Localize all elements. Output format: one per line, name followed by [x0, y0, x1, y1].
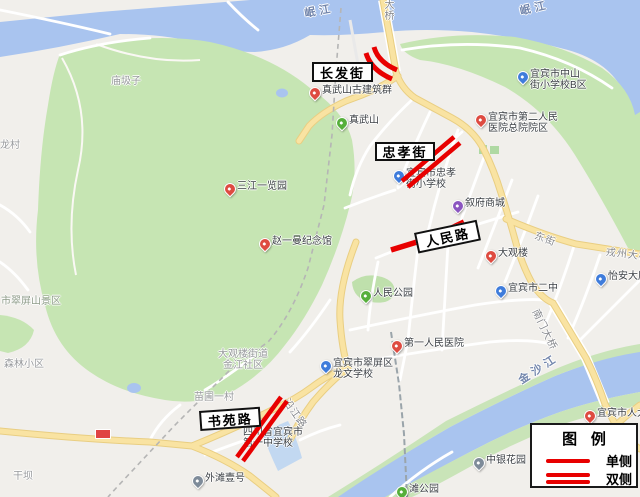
legend-label-double: 双侧	[606, 469, 632, 488]
poi-label: 宜宾市人大	[597, 408, 640, 419]
single-line-icon	[546, 459, 590, 463]
area-label-daguanlou-jiedao: 大观楼街道 金江社区	[215, 349, 271, 371]
poi-label: 四川省宜宾市第一中学校	[243, 427, 303, 449]
poi-label: 宜宾市忠孝街小学校	[406, 168, 456, 190]
map-canvas[interactable]: 岷江岷江金沙江 大桥东街南门大桥沿江路戎州大桥 庙圾子龙村市翠屏山景区森林小区干…	[0, 0, 640, 497]
poi-label: 宜宾市第二人民医院总院院区	[488, 112, 558, 134]
road-box-zhongxiaojie: 忠孝街	[375, 142, 435, 161]
road-box-shuyuanlu: 书苑路	[199, 407, 261, 431]
poi-label: 三江一览园	[237, 181, 287, 192]
poi-label: 滩公园	[409, 484, 439, 495]
poi-label: 宜宾市二中	[508, 283, 558, 294]
area-label-miaopu: 苗圃一村	[194, 388, 234, 403]
road-number-badge	[95, 429, 111, 439]
poi-label: 人民公园	[373, 288, 413, 299]
double-line-icon	[546, 473, 590, 484]
area-label-ganba: 干坝	[13, 467, 33, 482]
poi-label: 第一人民医院	[404, 338, 464, 349]
legend-row-double: 双侧	[546, 472, 636, 485]
legend-row-single: 单侧	[546, 454, 636, 467]
poi-label: 真武山古建筑群	[322, 85, 392, 96]
poi-label: 大观楼	[498, 248, 528, 259]
area-label-longcun: 龙村	[0, 136, 20, 151]
road-box-changfajie: 长发街	[312, 62, 373, 82]
area-label-senlin: 森林小区	[4, 355, 44, 370]
poi-label: 宜宾市中山街小学校B区	[530, 69, 587, 91]
poi-label: 外滩壹号	[205, 473, 245, 484]
pond	[127, 383, 141, 393]
area-label-miaojizi: 庙圾子	[111, 72, 141, 87]
legend-title: 图 例	[532, 428, 636, 449]
city-park-square	[490, 146, 499, 154]
poi-label: 真武山	[349, 115, 379, 126]
hill-pond	[276, 89, 288, 98]
area-label-cuipingshan: 市翠屏山景区	[1, 292, 61, 307]
legend: 图 例 单侧 双侧	[530, 423, 638, 488]
poi-label: 怡安大厦	[608, 271, 640, 282]
poi-label: 叙府商城	[465, 198, 505, 209]
poi-label: 中银花园	[486, 455, 526, 466]
poi-label: 宜宾市翠屏区龙文学校	[333, 358, 393, 380]
road-label-daqiao: 大桥	[383, 1, 396, 22]
legend-label-single: 单侧	[606, 451, 632, 470]
poi-label: 赵一曼纪念馆	[272, 236, 332, 247]
